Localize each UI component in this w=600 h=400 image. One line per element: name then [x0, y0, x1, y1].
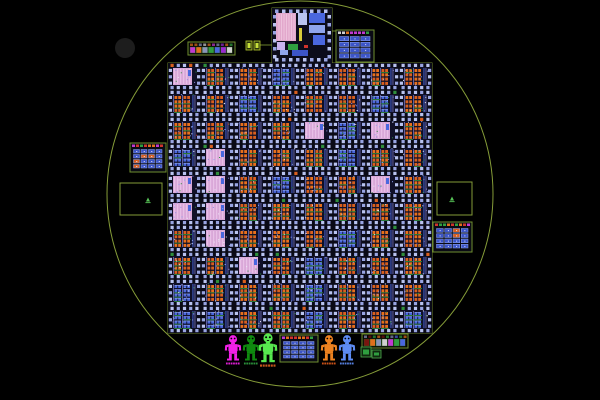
- sprinkle-dot: [281, 85, 282, 86]
- sprinkle-dot: [421, 187, 422, 188]
- cell-blob-hl: [307, 312, 314, 313]
- cell-blob: [178, 136, 181, 139]
- cell-blob-hl: [340, 235, 347, 236]
- cell-blob: [250, 204, 253, 207]
- sprinkle-dot: [359, 236, 360, 237]
- pad: [329, 163, 332, 166]
- sprinkle-dot: [189, 100, 190, 101]
- green-line: [273, 211, 281, 212]
- violet-strip: [426, 311, 427, 328]
- pad: [230, 312, 233, 315]
- cell-blob: [241, 69, 244, 72]
- pad: [336, 113, 339, 116]
- sprinkle-dot: [380, 186, 381, 187]
- blue-strip: [424, 257, 425, 274]
- pad: [414, 113, 417, 116]
- sprinkle-dot: [273, 166, 274, 167]
- die-cell: [234, 63, 267, 90]
- sprinkle-dot: [192, 320, 193, 321]
- cell-blob: [241, 159, 244, 162]
- pad: [327, 253, 330, 256]
- cell-blob: [220, 78, 223, 81]
- cell-blob: [217, 285, 220, 288]
- cell-blob: [244, 208, 247, 211]
- cell-blob: [343, 325, 346, 328]
- pad: [189, 253, 192, 256]
- sprinkle-dot: [174, 268, 175, 269]
- green-line: [282, 139, 290, 140]
- cell-blob-hl: [250, 100, 257, 101]
- pad: [408, 172, 411, 175]
- pad: [301, 190, 304, 193]
- pad: [202, 231, 205, 234]
- sprinkle-dot: [423, 151, 424, 152]
- violet-line: [347, 203, 348, 220]
- pad: [387, 307, 390, 310]
- sprinkle-dot: [423, 273, 424, 274]
- die-cell: [399, 171, 432, 198]
- robot-foot: [234, 359, 239, 361]
- cell-blob-hl: [316, 321, 323, 322]
- pad: [177, 145, 180, 148]
- cell-blob-hl: [316, 298, 323, 299]
- pad: [375, 280, 378, 283]
- mini-cell-dot: [344, 50, 345, 51]
- violet-line: [239, 149, 240, 166]
- pad: [197, 298, 200, 301]
- cell-blob: [286, 154, 289, 157]
- sprinkle-dot: [279, 136, 280, 137]
- top-test-die: [272, 8, 332, 63]
- robot-label-mark: [329, 363, 331, 365]
- sprinkle-dot: [388, 75, 389, 76]
- pad: [301, 163, 304, 166]
- die-cell: [201, 252, 234, 279]
- sprinkle-dot: [294, 112, 295, 113]
- sprinkle-dot: [246, 137, 247, 138]
- cell-blob: [343, 321, 346, 324]
- sprinkle-dot: [422, 110, 423, 111]
- pad: [414, 194, 417, 197]
- sprinkle-dot: [249, 100, 250, 101]
- pad: [268, 150, 271, 153]
- pad: [329, 244, 332, 247]
- die-cell: [300, 252, 333, 279]
- cell-blob: [274, 325, 277, 328]
- pad: [334, 291, 337, 294]
- pad: [195, 199, 198, 202]
- sprinkle-dot: [241, 190, 242, 191]
- blue-strip: [292, 284, 293, 301]
- cell-blob: [415, 204, 418, 207]
- pad: [243, 118, 246, 121]
- pad: [360, 64, 363, 67]
- cell-blob: [376, 217, 379, 220]
- pad: [276, 167, 279, 170]
- pad: [301, 318, 304, 321]
- green-line: [339, 297, 347, 298]
- pad: [197, 163, 200, 166]
- sprinkle-dot: [385, 241, 386, 242]
- sprinkle-dot: [377, 294, 378, 295]
- pad: [197, 264, 200, 267]
- mini-cell-dot: [440, 235, 441, 236]
- pad: [195, 307, 198, 310]
- cell-blob: [253, 240, 256, 243]
- sprinkle-dot: [392, 148, 393, 149]
- cell-blob: [415, 240, 418, 243]
- sprinkle-dot: [173, 318, 174, 319]
- robot-label-mark: [256, 363, 258, 365]
- cell-blob-hl: [184, 316, 191, 317]
- cell-blob: [250, 123, 253, 126]
- green-line: [282, 328, 290, 329]
- cell-blob: [418, 258, 421, 261]
- blue-strip: [292, 311, 293, 328]
- sprinkle-dot: [318, 322, 319, 323]
- pad: [367, 109, 370, 112]
- cell-blob: [283, 262, 286, 265]
- pad: [408, 221, 411, 224]
- die-cell: [201, 63, 234, 90]
- die-cell: [168, 144, 201, 171]
- pad: [400, 217, 403, 220]
- sprinkle-dot: [257, 125, 258, 126]
- pad: [169, 312, 172, 315]
- cell-blob-hl: [373, 105, 380, 106]
- legend-mini-cell: [230, 44, 233, 47]
- wafer-layout-canvas[interactable]: [0, 0, 600, 400]
- pad: [393, 194, 396, 197]
- cell-blob: [211, 285, 214, 288]
- sprinkle-dot: [421, 121, 422, 122]
- violet-line: [371, 257, 372, 274]
- sprinkle-dot: [319, 318, 320, 319]
- sprinkle-dot: [338, 206, 339, 207]
- violet-strip: [195, 311, 196, 328]
- robot-foot: [348, 359, 353, 361]
- green-line: [282, 103, 290, 104]
- green-line: [414, 207, 422, 208]
- violet-line: [182, 257, 183, 274]
- sprinkle-dot: [423, 192, 424, 193]
- cell-blob: [319, 100, 322, 103]
- green-line: [372, 108, 380, 109]
- cell-blob: [310, 73, 313, 76]
- pad: [210, 307, 213, 310]
- cell-blob: [352, 181, 355, 184]
- cell-blob: [319, 163, 322, 166]
- cell-blob: [253, 285, 256, 288]
- pad: [235, 264, 238, 267]
- die-cell: [399, 252, 432, 279]
- pad: [282, 253, 285, 256]
- sprinkle-dot: [319, 188, 320, 189]
- pad: [288, 275, 291, 278]
- pad: [428, 183, 431, 186]
- sprinkle-dot: [239, 239, 240, 240]
- blue-strip: [424, 230, 425, 247]
- pad: [309, 199, 312, 202]
- green-line: [240, 162, 248, 163]
- cell-blob: [178, 244, 181, 247]
- pad: [171, 275, 174, 278]
- die-cell: [168, 117, 201, 144]
- pad: [222, 280, 225, 283]
- cell-blob-hl: [208, 316, 215, 317]
- pad: [189, 248, 192, 251]
- pad: [183, 113, 186, 116]
- cell-blob: [406, 163, 409, 166]
- cell-blob: [376, 204, 379, 207]
- sprinkle-dot: [426, 245, 427, 246]
- sprinkle-dot: [415, 85, 416, 86]
- violet-line: [281, 176, 282, 193]
- pad: [414, 253, 417, 256]
- pad: [315, 118, 318, 121]
- cell-blob: [277, 150, 280, 153]
- pad: [197, 291, 200, 294]
- cell-blob: [310, 109, 313, 112]
- violet-line: [380, 230, 381, 247]
- pad: [195, 221, 198, 224]
- sprinkle-dot: [228, 130, 229, 131]
- pad: [367, 96, 370, 99]
- pad: [369, 248, 372, 251]
- pad: [309, 248, 312, 251]
- sprinkle-dot: [187, 218, 188, 219]
- sprinkle-dot: [361, 185, 362, 186]
- pad: [354, 91, 357, 94]
- pad: [321, 307, 324, 310]
- pad: [315, 172, 318, 175]
- pad: [270, 253, 273, 256]
- violet-line: [173, 311, 174, 328]
- cell-blob: [418, 235, 421, 238]
- cell-blob: [250, 231, 253, 234]
- pad: [171, 199, 174, 202]
- pad: [263, 318, 266, 321]
- robot-hips: [229, 352, 237, 354]
- pad: [321, 329, 324, 332]
- pad: [360, 307, 363, 310]
- cell-blob: [274, 136, 277, 139]
- pad: [387, 302, 390, 305]
- pad: [387, 329, 390, 332]
- pad: [315, 140, 318, 143]
- pad: [197, 231, 200, 234]
- pad: [329, 102, 332, 105]
- pad: [222, 113, 225, 116]
- green-square: [361, 347, 371, 357]
- violet-strip: [228, 68, 229, 85]
- sprinkle-dot: [340, 257, 341, 258]
- cell-blob: [406, 204, 409, 207]
- blue-strip: [226, 257, 227, 274]
- pad: [276, 248, 279, 251]
- pad: [270, 172, 273, 175]
- cell-blob: [253, 132, 256, 135]
- pad: [197, 318, 200, 321]
- pad: [360, 221, 363, 224]
- cell-blob: [187, 109, 190, 112]
- die-cell: [168, 63, 201, 90]
- sprinkle-dot: [191, 133, 192, 134]
- cell-blob: [217, 127, 220, 130]
- pad: [237, 221, 240, 224]
- pad: [348, 145, 351, 148]
- pad: [204, 86, 207, 89]
- violet-strip: [228, 284, 229, 301]
- sprinkle-dot: [412, 289, 413, 290]
- green-line: [372, 162, 380, 163]
- sprinkle-dot: [315, 219, 316, 220]
- pad: [367, 325, 370, 328]
- sprinkle-dot: [403, 154, 404, 155]
- cell-blob: [349, 262, 352, 265]
- pad: [268, 96, 271, 99]
- pad: [414, 140, 417, 143]
- sprinkle-dot: [216, 325, 217, 326]
- pad: [375, 199, 378, 202]
- cell-blob: [409, 285, 412, 288]
- sprinkle-dot: [356, 314, 357, 315]
- legend-mini-cell: [386, 336, 389, 339]
- pad: [210, 199, 213, 202]
- pad: [301, 96, 304, 99]
- cell-blob: [274, 267, 277, 270]
- pink-stripe: [384, 177, 385, 192]
- cell-blob: [274, 294, 277, 297]
- cell-blob-hl: [349, 240, 356, 241]
- cell-blob: [220, 127, 223, 130]
- sprinkle-dot: [182, 165, 183, 166]
- pad: [426, 118, 429, 121]
- pad: [268, 291, 271, 294]
- cell-blob: [418, 105, 421, 108]
- robot-eye: [269, 336, 271, 338]
- cell-blob: [241, 285, 244, 288]
- cell-blob: [382, 285, 385, 288]
- pad: [296, 58, 300, 62]
- cell-blob-hl: [175, 150, 182, 151]
- pad: [336, 302, 339, 305]
- pad: [202, 75, 205, 78]
- pad: [362, 136, 365, 139]
- pad: [235, 312, 238, 315]
- blue-bit: [221, 232, 224, 238]
- green-line: [183, 328, 191, 329]
- sprinkle-dot: [406, 291, 407, 292]
- sprinkle-dot: [343, 159, 344, 160]
- cell-blob: [382, 159, 385, 162]
- sprinkle-dot: [377, 210, 378, 211]
- sprinkle-dot: [212, 274, 213, 275]
- sprinkle-dot: [412, 244, 413, 245]
- cell-blob-hl: [307, 271, 314, 272]
- die-cell: [168, 90, 201, 117]
- sprinkle-dot: [309, 285, 310, 286]
- pad: [222, 91, 225, 94]
- pad: [426, 280, 429, 283]
- pad: [348, 140, 351, 143]
- sprinkle-dot: [376, 137, 377, 138]
- pad: [263, 291, 266, 294]
- pad: [169, 156, 172, 159]
- pad: [408, 253, 411, 256]
- cell-blob-hl: [340, 231, 347, 232]
- cell-blob-hl: [184, 159, 191, 160]
- green-line: [315, 153, 323, 154]
- sprinkle-dot: [215, 189, 216, 190]
- pad: [303, 118, 306, 121]
- pad: [270, 140, 273, 143]
- pad: [395, 210, 398, 213]
- sprinkle-dot: [343, 187, 344, 188]
- pad: [183, 226, 186, 229]
- violet-strip: [294, 203, 295, 220]
- cell-blob: [316, 150, 319, 153]
- cell-blob: [352, 96, 355, 99]
- pad: [395, 318, 398, 321]
- mini-cell-dot: [311, 343, 312, 344]
- pad: [296, 264, 299, 267]
- cell-blob: [211, 127, 214, 130]
- pad: [329, 291, 332, 294]
- layout-viewport[interactable]: [0, 0, 600, 400]
- pad: [334, 204, 337, 207]
- sprinkle-dot: [190, 159, 191, 160]
- violet-line: [173, 257, 174, 274]
- legend-mini-cell: [212, 44, 215, 47]
- violet-line: [338, 95, 339, 112]
- pad: [426, 194, 429, 197]
- pad: [183, 199, 186, 202]
- sprinkle-dot: [426, 189, 427, 190]
- cell-blob: [175, 96, 178, 99]
- sprinkle-dot: [345, 284, 346, 285]
- mini-cell-dot: [448, 230, 449, 231]
- pad: [426, 253, 429, 256]
- cell-blob: [277, 240, 280, 243]
- pad: [230, 96, 233, 99]
- cell-blob: [340, 262, 343, 265]
- pad: [228, 118, 231, 121]
- sprinkle-dot: [254, 257, 255, 258]
- cell-blob: [244, 78, 247, 81]
- cell-blob: [418, 240, 421, 243]
- violet-line: [371, 311, 372, 328]
- cell-blob: [184, 127, 187, 130]
- cell-blob: [382, 213, 385, 216]
- sprinkle-dot: [255, 160, 256, 161]
- blue-strip: [358, 176, 359, 193]
- sprinkle-dot: [173, 322, 174, 323]
- pad: [381, 329, 384, 332]
- cell-blob: [385, 316, 388, 319]
- pad: [303, 172, 306, 175]
- cell-blob: [316, 217, 319, 220]
- robot-label-mark: [347, 363, 349, 365]
- legend-mini-cell: [373, 336, 376, 339]
- green-line: [339, 103, 347, 104]
- violet-strip: [360, 230, 361, 247]
- pad: [204, 145, 207, 148]
- violet-line: [380, 203, 381, 220]
- blue-strip: [325, 284, 326, 301]
- sprinkle-dot: [213, 272, 214, 273]
- cell-blob: [307, 186, 310, 189]
